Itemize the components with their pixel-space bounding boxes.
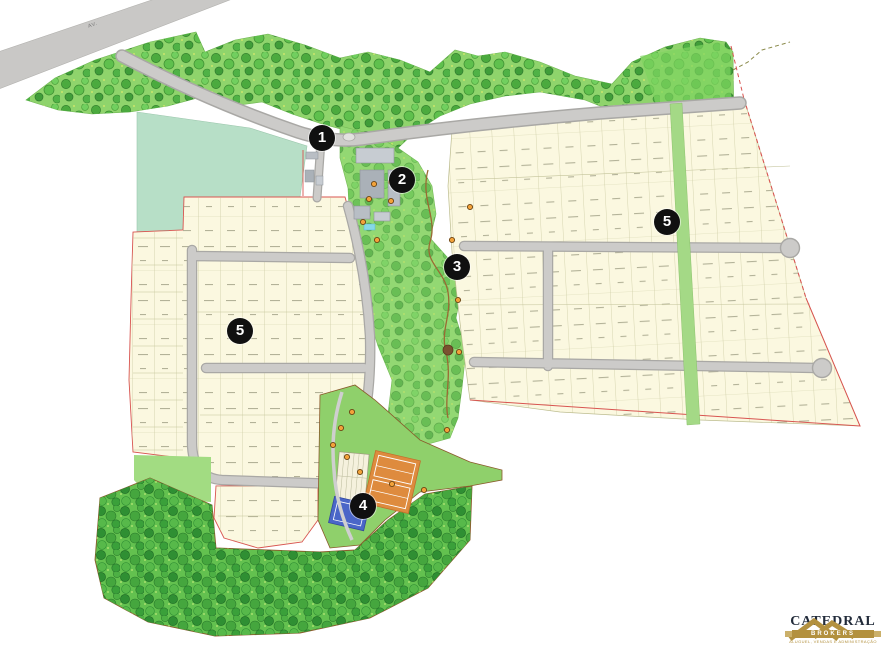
poi-icon xyxy=(357,469,362,474)
poi-icon xyxy=(389,481,394,486)
map-marker-5: 5 xyxy=(227,318,253,344)
poi-icon xyxy=(338,425,343,430)
park-kiosk xyxy=(443,345,453,355)
poi-icon xyxy=(374,237,379,242)
map-marker-1: 1 xyxy=(309,125,335,151)
map-marker-3: 3 xyxy=(444,254,470,280)
map-marker-2: 2 xyxy=(389,167,415,193)
poi-icon xyxy=(421,487,426,492)
poi-icon xyxy=(467,204,472,209)
poi-icon xyxy=(344,454,349,459)
logo-sub-band: BROKERS xyxy=(792,630,874,638)
poi-icon xyxy=(371,181,376,186)
masterplan-canvas: AV. 123455 CATEDRAL BROKERS ALUGUEL, VEN… xyxy=(0,0,884,650)
poi-icon xyxy=(360,219,365,224)
map-marker-4: 4 xyxy=(350,493,376,519)
poi-icon xyxy=(444,427,449,432)
pool xyxy=(364,224,375,230)
map-marker-5: 5 xyxy=(654,209,680,235)
boundary-dashed-olive xyxy=(733,42,790,70)
poi-icon xyxy=(388,198,393,203)
entrance-roundabout xyxy=(343,133,355,141)
poi-icon xyxy=(349,409,354,414)
poi-icon xyxy=(449,237,454,242)
poi-icon xyxy=(366,196,371,201)
bottom-lot-block xyxy=(214,486,318,548)
right-lot-block xyxy=(448,99,860,426)
masterplan-svg xyxy=(0,0,884,650)
poi-icon xyxy=(456,349,461,354)
poi-icon xyxy=(330,442,335,447)
poi-icon xyxy=(455,297,460,302)
catedral-brokers-logo: CATEDRAL BROKERS ALUGUEL, VENDAS E ADMIN… xyxy=(784,615,882,644)
